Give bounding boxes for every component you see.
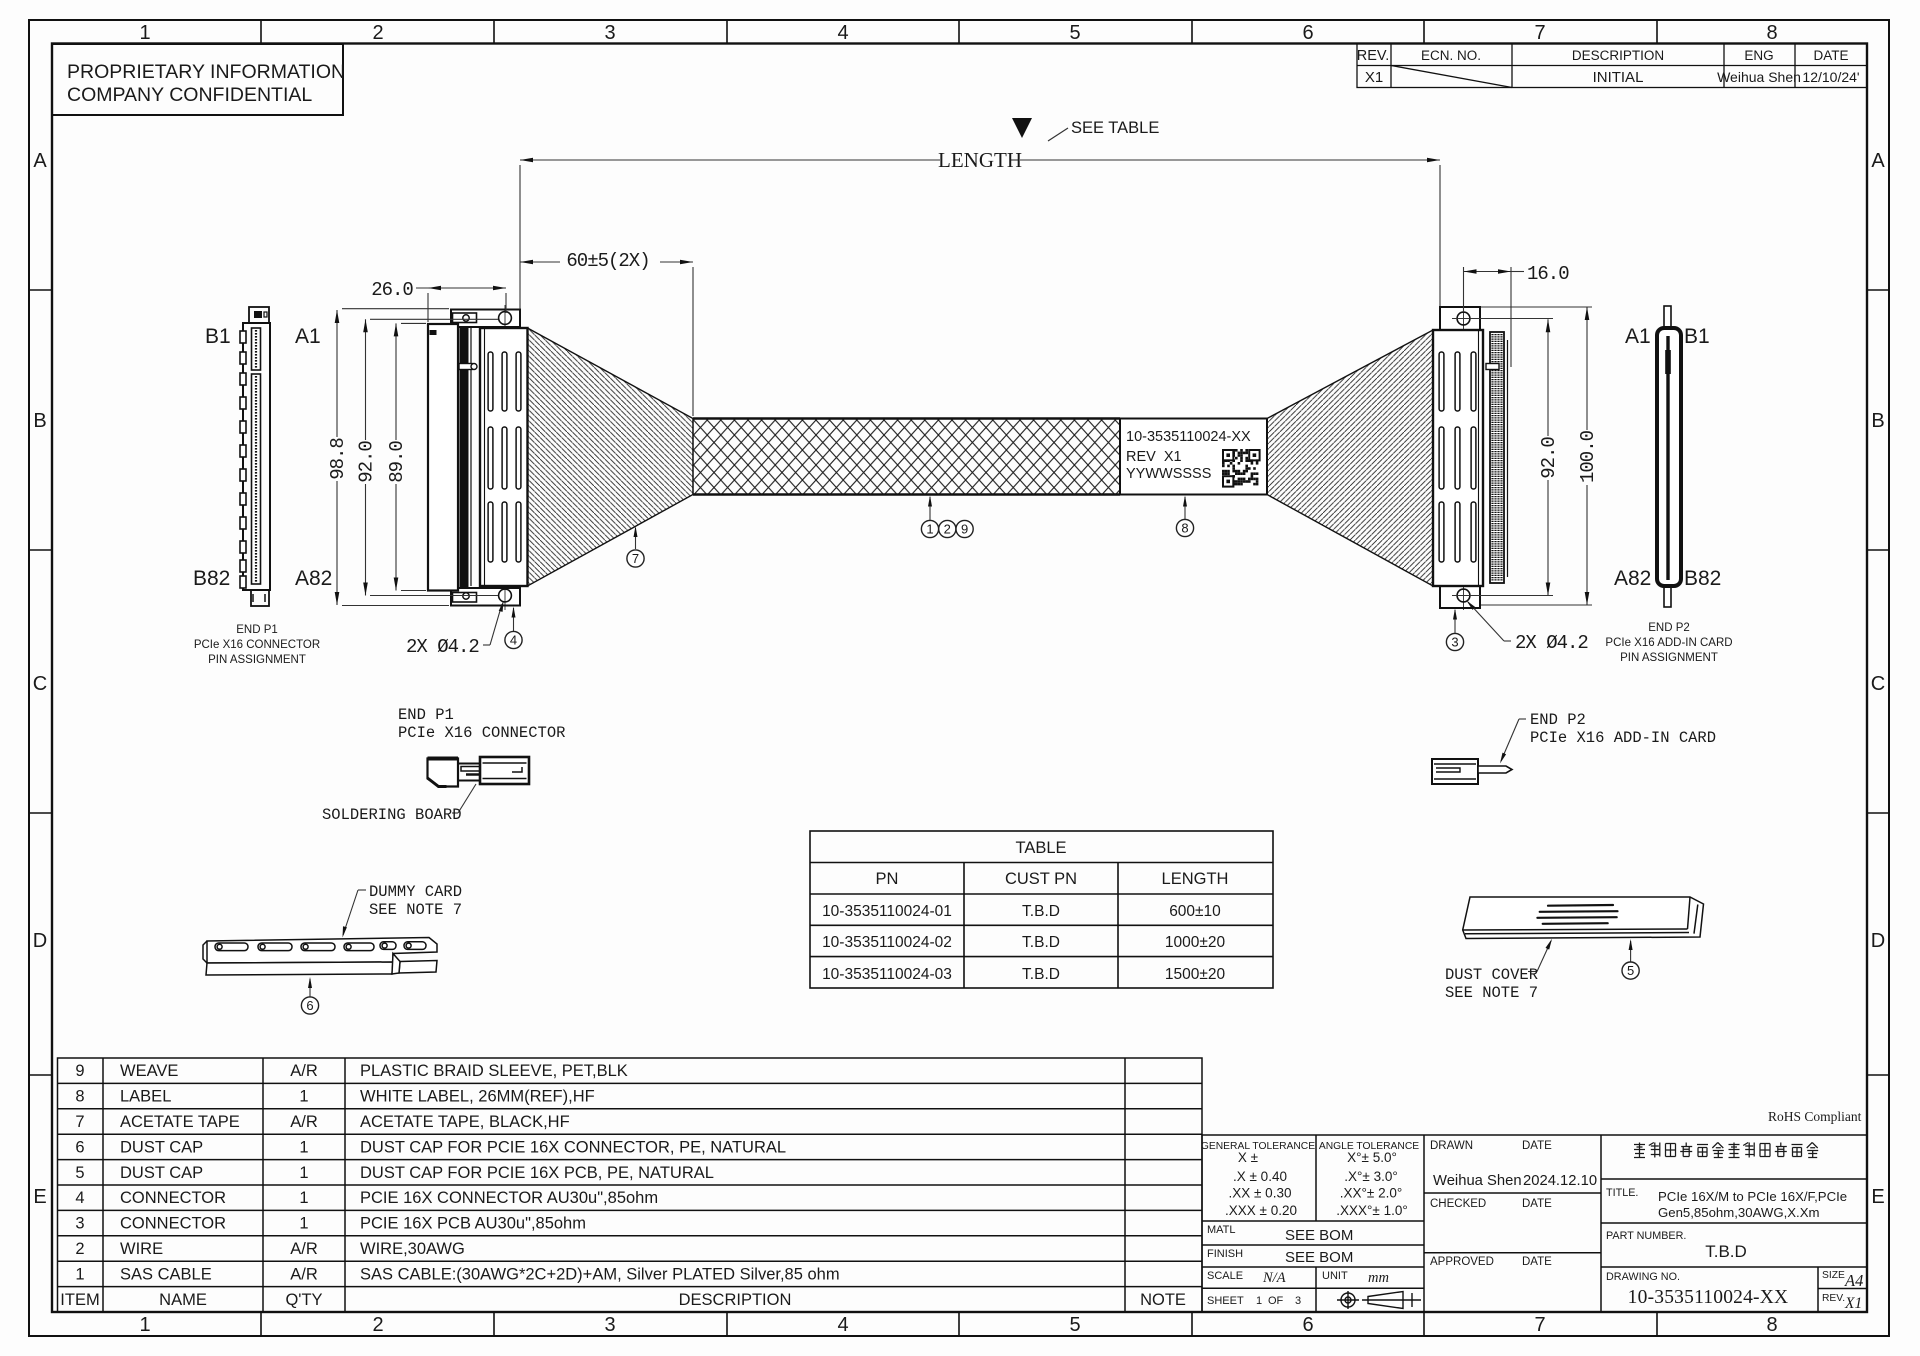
svg-text:1: 1 [299,1138,308,1156]
svg-text:A82: A82 [295,567,332,590]
svg-text:7: 7 [75,1113,84,1131]
svg-text:DUST CAP: DUST CAP [120,1138,203,1156]
svg-text:26.0: 26.0 [371,279,413,301]
svg-text:LENGTH: LENGTH [1162,870,1229,888]
svg-text:Weihua Shen: Weihua Shen [1433,1173,1522,1189]
svg-text:SIZE: SIZE [1822,1270,1845,1281]
svg-text:FINISH: FINISH [1207,1248,1243,1260]
svg-text:2: 2 [75,1240,84,1258]
svg-text:4: 4 [837,22,848,44]
svg-text:9: 9 [961,522,968,537]
svg-text:TABLE: TABLE [1015,839,1066,857]
svg-text:.X°± 3.0°: .X°± 3.0° [1344,1169,1397,1184]
svg-text:CONNECTOR: CONNECTOR [120,1215,226,1233]
svg-text:Q'TY: Q'TY [285,1291,322,1309]
svg-text:3: 3 [604,1314,615,1336]
svg-text:9: 9 [75,1062,84,1080]
svg-text:.XXX°± 1.0°: .XXX°± 1.0° [1336,1203,1408,1218]
svg-text:1: 1 [1256,1295,1262,1307]
svg-text:100.0: 100.0 [1577,430,1599,483]
svg-text:WIRE: WIRE [120,1240,163,1258]
svg-text:D: D [33,930,47,952]
svg-text:1: 1 [299,1088,308,1106]
svg-text:END P1: END P1 [236,624,278,636]
svg-text:.X ± 0.40: .X ± 0.40 [1233,1169,1287,1184]
svg-text:DRAWN: DRAWN [1430,1140,1473,1152]
svg-text:CUST PN: CUST PN [1005,870,1077,888]
svg-text:2X Ø4.2: 2X Ø4.2 [406,636,479,658]
svg-text:SAS CABLE:(30AWG*2C+2D)+AM, Si: SAS CABLE:(30AWG*2C+2D)+AM, Silver PLATE… [360,1265,840,1283]
svg-text:10-3535110024-02: 10-3535110024-02 [822,934,952,951]
svg-text:REV X1: REV X1 [1126,449,1182,465]
svg-text:92.0: 92.0 [1538,437,1560,479]
svg-text:1: 1 [299,1164,308,1182]
svg-text:12/10/24': 12/10/24' [1802,69,1859,85]
svg-text:A/R: A/R [290,1062,318,1080]
svg-text:TITLE.: TITLE. [1606,1187,1638,1199]
svg-text:92.0: 92.0 [356,441,378,483]
svg-text:A1: A1 [1625,325,1651,348]
svg-text:2: 2 [372,22,383,44]
svg-text:END P2: END P2 [1648,622,1690,634]
svg-text:X1: X1 [1844,1295,1862,1312]
svg-text:16.0: 16.0 [1527,263,1569,285]
svg-text:SEE BOM: SEE BOM [1285,1227,1353,1244]
svg-text:DUST CAP FOR PCIE 16X CONNECTO: DUST CAP FOR PCIE 16X CONNECTOR, PE, NAT… [360,1138,786,1156]
svg-text:END P1: END P1 [398,706,454,724]
svg-text:8: 8 [1766,22,1777,44]
svg-text:NOTE: NOTE [1140,1291,1186,1309]
svg-text:mm: mm [1368,1270,1389,1286]
svg-text:1: 1 [139,1314,150,1336]
svg-text:ITEM: ITEM [60,1291,99,1309]
svg-text:SEE BOM: SEE BOM [1285,1249,1353,1266]
svg-text:PCIe X16 ADD-IN CARD: PCIe X16 ADD-IN CARD [1530,729,1716,747]
svg-text:E: E [33,1186,46,1208]
svg-text:1: 1 [926,522,933,537]
svg-text:10-3535110024-XX: 10-3535110024-XX [1628,1287,1789,1308]
svg-text:C: C [33,673,47,695]
svg-text:4: 4 [75,1189,84,1207]
svg-text:SEE NOTE 7: SEE NOTE 7 [1445,984,1538,1002]
svg-text:6: 6 [306,998,313,1013]
svg-text:3: 3 [1451,635,1458,650]
svg-text:2024.12.10: 2024.12.10 [1523,1173,1597,1189]
svg-text:Gen5,85ohm,30AWG,X.Xm: Gen5,85ohm,30AWG,X.Xm [1658,1205,1820,1220]
svg-text:A4: A4 [1844,1271,1863,1290]
svg-text:.XX°± 2.0°: .XX°± 2.0° [1340,1186,1402,1201]
svg-text:98.8: 98.8 [327,438,349,480]
svg-text:3: 3 [1295,1295,1301,1307]
svg-text:PIN ASSIGNMENT: PIN ASSIGNMENT [208,654,306,666]
svg-text:PCIe 16X/M to PCIe 16X/F,PCIe: PCIe 16X/M to PCIe 16X/F,PCIe [1658,1189,1847,1204]
svg-text:A: A [33,150,47,172]
svg-text:LABEL: LABEL [120,1088,171,1106]
svg-text:CHECKED: CHECKED [1430,1198,1486,1210]
svg-text:DUMMY CARD: DUMMY CARD [369,883,462,901]
svg-text:WEAVE: WEAVE [120,1062,178,1080]
svg-text:.XX ± 0.30: .XX ± 0.30 [1229,1186,1292,1201]
svg-text:DATE: DATE [1522,1140,1552,1152]
svg-text:OF: OF [1268,1295,1284,1307]
svg-text:89.0: 89.0 [386,441,408,483]
svg-text:DATE: DATE [1522,1198,1552,1210]
svg-text:B82: B82 [1684,567,1721,590]
svg-text:1: 1 [299,1189,308,1207]
svg-text:SEE TABLE: SEE TABLE [1071,119,1159,137]
svg-text:YYWWSSSS: YYWWSSSS [1126,466,1211,482]
svg-text:PCIe X16 CONNECTOR: PCIe X16 CONNECTOR [194,639,320,651]
svg-text:DATE: DATE [1813,48,1848,63]
svg-text:A1: A1 [295,325,321,348]
svg-text:A/R: A/R [290,1113,318,1131]
svg-text:X°± 5.0°: X°± 5.0° [1347,1150,1397,1165]
svg-text:6: 6 [75,1138,84,1156]
svg-text:DUST COVER: DUST COVER [1445,966,1538,984]
svg-text:B1: B1 [205,325,231,348]
svg-text:7: 7 [1534,1314,1545,1336]
svg-text:10-3535110024-XX: 10-3535110024-XX [1126,429,1251,445]
svg-text:PART NUMBER.: PART NUMBER. [1606,1230,1686,1242]
svg-text:UNIT: UNIT [1322,1270,1348,1282]
svg-text:ACETATE TAPE: ACETATE TAPE [120,1113,240,1131]
svg-text:600±10: 600±10 [1169,903,1221,920]
svg-text:B: B [1871,410,1884,432]
svg-text:DATE: DATE [1522,1256,1552,1268]
svg-text:2: 2 [372,1314,383,1336]
svg-text:4: 4 [837,1314,848,1336]
svg-text:B82: B82 [193,567,230,590]
svg-text:T.B.D: T.B.D [1705,1242,1747,1261]
svg-text:A: A [1871,150,1885,172]
svg-text:1: 1 [139,22,150,44]
svg-text:APPROVED: APPROVED [1430,1256,1494,1268]
svg-text:ENG: ENG [1744,48,1773,63]
svg-text:PCIE 16X CONNECTOR AU30u",85oh: PCIE 16X CONNECTOR AU30u",85ohm [360,1189,658,1207]
svg-text:E: E [1871,1186,1884,1208]
svg-text:B: B [33,410,46,432]
svg-text:10-3535110024-03: 10-3535110024-03 [822,966,952,983]
svg-text:8: 8 [1181,521,1188,536]
svg-text:SEE NOTE 7: SEE NOTE 7 [369,901,462,919]
svg-text:LENGTH: LENGTH [938,148,1022,172]
svg-text:3: 3 [604,22,615,44]
svg-text:DESCRIPTION: DESCRIPTION [679,1291,792,1309]
svg-text:A82: A82 [1614,567,1651,590]
svg-text:T.B.D: T.B.D [1022,934,1060,951]
svg-text:N/A: N/A [1262,1270,1286,1286]
svg-text:DUST CAP FOR PCIE 16X PCB, PE,: DUST CAP FOR PCIE 16X PCB, PE, NATURAL [360,1164,714,1182]
svg-text:RoHS Compliant: RoHS Compliant [1768,1109,1862,1124]
svg-text:WIRE,30AWG: WIRE,30AWG [360,1240,465,1258]
svg-text:7: 7 [632,551,639,566]
svg-text:PCIe X16 CONNECTOR: PCIe X16 CONNECTOR [398,724,565,742]
svg-text:NAME: NAME [159,1291,207,1309]
svg-text:ACETATE TAPE, BLACK,HF: ACETATE TAPE, BLACK,HF [360,1113,570,1131]
svg-text:60±5(2X): 60±5(2X) [566,250,649,272]
svg-text:SHEET: SHEET [1207,1295,1244,1307]
svg-text:1500±20: 1500±20 [1165,966,1226,983]
svg-text:ECN. NO.: ECN. NO. [1421,48,1481,63]
svg-text:T.B.D: T.B.D [1022,903,1060,920]
svg-text:10-3535110024-01: 10-3535110024-01 [822,903,952,920]
svg-text:CONNECTOR: CONNECTOR [120,1189,226,1207]
svg-text:SCALE: SCALE [1207,1270,1243,1282]
svg-text:DUST CAP: DUST CAP [120,1164,203,1182]
svg-text:6: 6 [1302,22,1313,44]
svg-text:PLASTIC BRAID SLEEVE, PET,BLK: PLASTIC BRAID SLEEVE, PET,BLK [360,1062,628,1080]
svg-text:1: 1 [75,1265,84,1283]
svg-text:6: 6 [1302,1314,1313,1336]
svg-text:2X Ø4.2: 2X Ø4.2 [1515,632,1588,654]
svg-text:T.B.D: T.B.D [1022,966,1060,983]
svg-text:8: 8 [75,1088,84,1106]
svg-text:Weihua Shen: Weihua Shen [1717,69,1801,85]
svg-text:D: D [1871,930,1885,952]
svg-text:X ±: X ± [1238,1150,1258,1165]
svg-text:PCIe X16 ADD-IN CARD: PCIe X16 ADD-IN CARD [1605,637,1732,649]
svg-text:4: 4 [510,633,517,648]
svg-text:7: 7 [1534,22,1545,44]
svg-text:5: 5 [1069,1314,1080,1336]
svg-text:3: 3 [75,1215,84,1233]
svg-text:PCIE 16X PCB AU30u",85ohm: PCIE 16X PCB AU30u",85ohm [360,1215,586,1233]
svg-text:PIN ASSIGNMENT: PIN ASSIGNMENT [1620,652,1718,664]
svg-text:SOLDERING BOARD: SOLDERING BOARD [322,806,462,824]
svg-text:DRAWING NO.: DRAWING NO. [1606,1271,1680,1283]
svg-text:1: 1 [299,1215,308,1233]
svg-text:8: 8 [1766,1314,1777,1336]
svg-text:1000±20: 1000±20 [1165,934,1226,951]
svg-text:5: 5 [1069,22,1080,44]
svg-text:A/R: A/R [290,1240,318,1258]
svg-text:MATL: MATL [1207,1224,1236,1236]
svg-text:2: 2 [944,522,951,537]
svg-text:5: 5 [1627,963,1634,978]
svg-text:B1: B1 [1684,325,1710,348]
svg-text:INITIAL: INITIAL [1593,69,1644,86]
svg-text:SAS CABLE: SAS CABLE [120,1265,212,1283]
svg-text:PN: PN [876,870,899,888]
svg-text:.XXX ± 0.20: .XXX ± 0.20 [1225,1203,1297,1218]
svg-text:C: C [1871,673,1885,695]
svg-text:COMPANY CONFIDENTIAL: COMPANY CONFIDENTIAL [67,84,312,106]
svg-text:REV.: REV. [1357,48,1390,64]
svg-text:A/R: A/R [290,1265,318,1283]
svg-text:WHITE LABEL, 26MM(REF),HF: WHITE LABEL, 26MM(REF),HF [360,1088,595,1106]
svg-text:PROPRIETARY INFORMATION: PROPRIETARY INFORMATION [67,61,345,83]
svg-text:DESCRIPTION: DESCRIPTION [1572,48,1664,63]
svg-text:5: 5 [75,1164,84,1182]
svg-text:X1: X1 [1365,69,1383,86]
svg-text:END P2: END P2 [1530,711,1586,729]
svg-text:REV.: REV. [1822,1293,1845,1304]
